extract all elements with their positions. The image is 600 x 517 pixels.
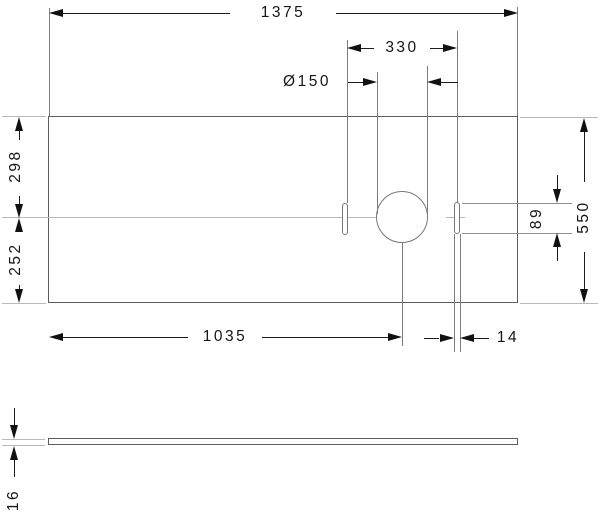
basin-hole-circle	[376, 191, 428, 243]
extension-line	[49, 8, 50, 116]
arrowhead-right	[363, 78, 377, 86]
extension-line	[347, 40, 348, 203]
dim-line-slot-width	[474, 338, 489, 339]
dim-label-front-depth: 252	[8, 231, 24, 287]
arrowhead-right	[388, 333, 402, 341]
arrowhead-right	[443, 44, 457, 52]
dim-line-hole-diameter	[441, 82, 458, 83]
dim-line-hole-diameter	[348, 82, 364, 83]
dim-line-hole-position	[262, 337, 388, 338]
arrowhead-down	[15, 289, 23, 303]
arrowhead-up	[580, 118, 588, 132]
extension-line	[2, 303, 46, 304]
extension-line	[520, 303, 598, 304]
arrowhead-left	[460, 334, 474, 342]
centerline	[2, 217, 377, 218]
dim-label-hole-position: 1035	[185, 329, 265, 345]
arrowhead-up	[15, 218, 23, 232]
arrowhead-left	[347, 44, 361, 52]
arrowhead-down	[553, 189, 561, 203]
extension-line	[2, 439, 45, 440]
arrowhead-right	[504, 9, 518, 17]
arrowhead-down	[10, 425, 18, 439]
dim-label-thickness: 16	[6, 479, 22, 517]
dim-line-total-depth	[584, 252, 585, 289]
extension-line	[462, 203, 572, 204]
dim-label-rear-depth: 298	[8, 138, 24, 194]
dim-line-slot-length	[557, 175, 558, 189]
dim-line-total-width	[63, 13, 230, 14]
extension-line	[454, 234, 455, 352]
arrowhead-up	[10, 446, 18, 460]
extension-line	[402, 243, 403, 346]
tap-slot-left	[342, 203, 348, 235]
arrowhead-left	[49, 333, 63, 341]
arrowhead-left	[49, 9, 63, 17]
dim-line-slot-width	[424, 338, 439, 339]
panel-top-view-outline	[48, 116, 518, 303]
arrowhead-right	[440, 334, 454, 342]
dim-line-slot-length	[557, 247, 558, 261]
arrowhead-down	[580, 289, 588, 303]
dimension-drawing: 1375 330 Ø150 298 252 550 89 1035 14	[0, 0, 600, 517]
dim-label-total-width: 1375	[243, 5, 323, 21]
extension-line	[377, 72, 378, 214]
dim-line-thickness	[14, 460, 15, 477]
extension-line	[427, 66, 428, 214]
tap-slot-right	[454, 202, 460, 234]
arrowhead-down	[15, 204, 23, 218]
panel-side-view-outline	[48, 438, 518, 445]
dim-line-total-width	[336, 13, 504, 14]
arrowhead-up	[553, 233, 561, 247]
extension-line	[457, 31, 458, 203]
extension-line	[2, 445, 45, 446]
dim-label-hole-diameter: Ø150	[267, 74, 347, 90]
arrowhead-up	[15, 117, 23, 131]
dim-label-total-depth: 550	[576, 182, 592, 252]
dim-label-slot-spacing: 330	[372, 40, 432, 56]
extension-line	[517, 7, 518, 116]
dim-line-total-depth	[584, 131, 585, 182]
dim-label-slot-width: 14	[488, 330, 528, 346]
dim-label-slot-length: 89	[529, 196, 545, 240]
dim-line-thickness	[14, 408, 15, 425]
arrowhead-left	[427, 78, 441, 86]
dim-line-hole-position	[63, 337, 188, 338]
extension-line	[2, 116, 46, 117]
